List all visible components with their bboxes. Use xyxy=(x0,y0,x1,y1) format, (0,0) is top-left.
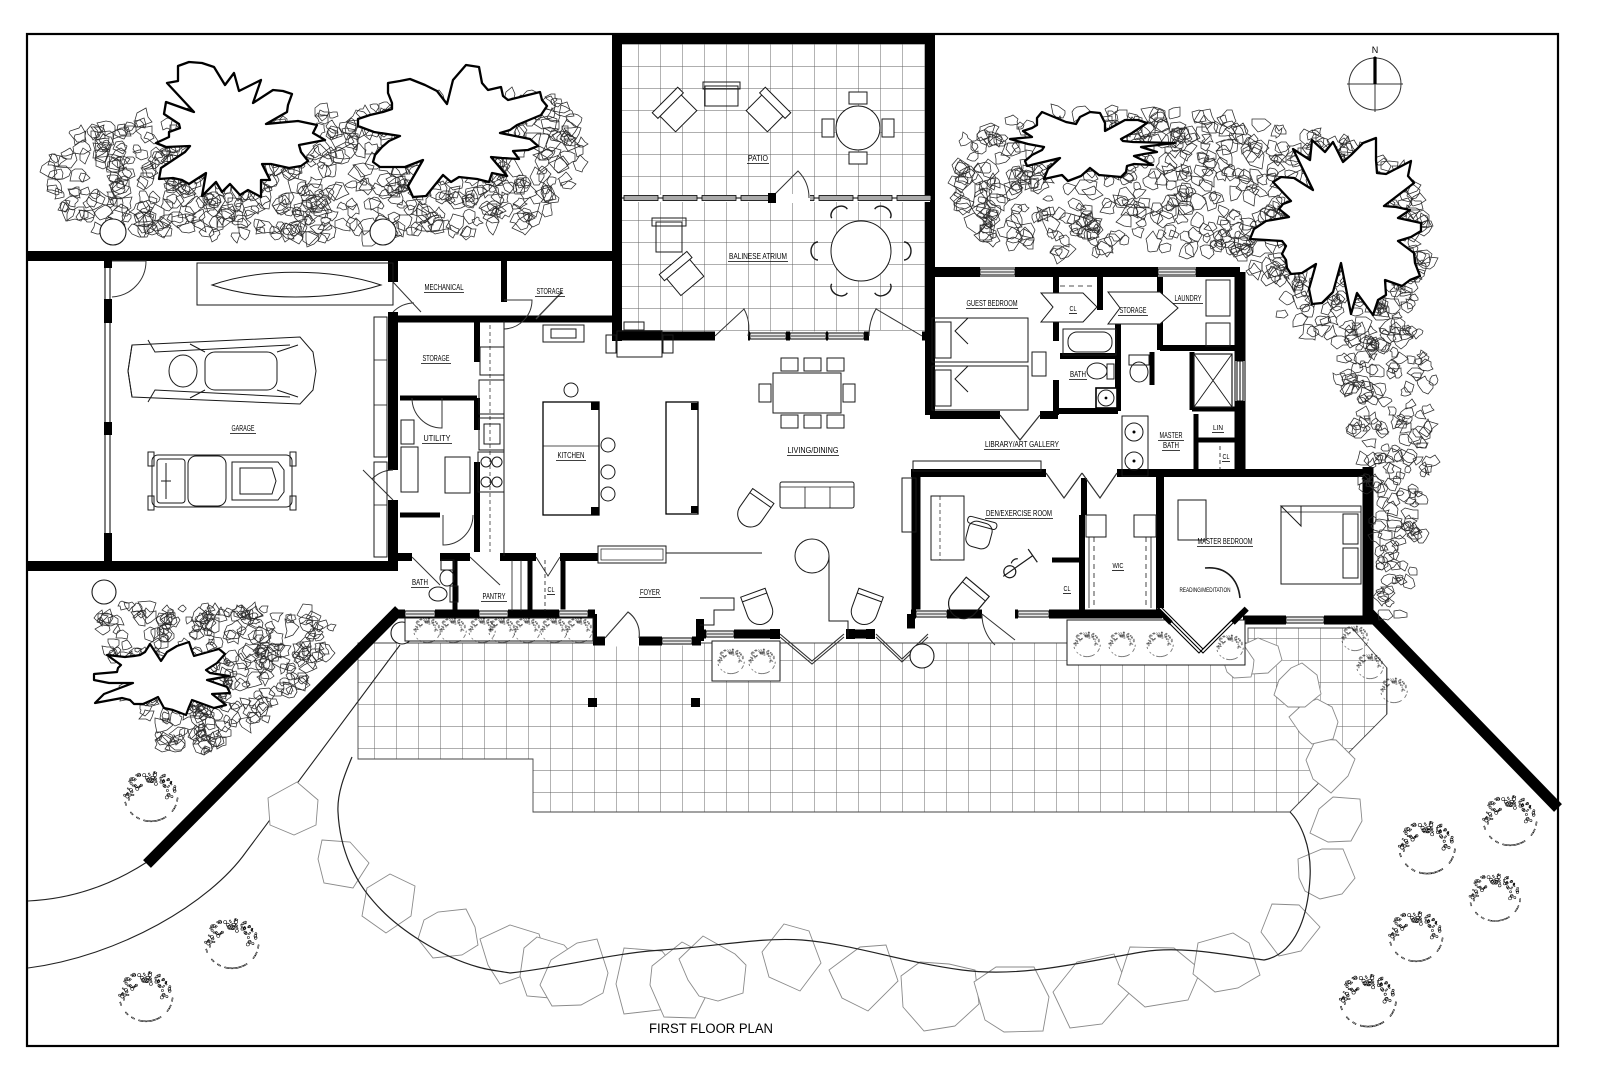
svg-text:PANTRY: PANTRY xyxy=(483,592,506,601)
svg-text:MASTER BEDROOM: MASTER BEDROOM xyxy=(1198,537,1253,546)
svg-text:LIBRARY/ART GALLERY: LIBRARY/ART GALLERY xyxy=(985,440,1059,449)
svg-text:GARAGE: GARAGE xyxy=(232,424,255,433)
svg-text:FIRST FLOOR PLAN: FIRST FLOOR PLAN xyxy=(649,1021,773,1036)
svg-text:MASTER: MASTER xyxy=(1160,431,1183,440)
svg-text:GUEST BEDROOM: GUEST BEDROOM xyxy=(967,299,1018,308)
svg-text:CL: CL xyxy=(1070,306,1077,313)
svg-text:LIVING/DINING: LIVING/DINING xyxy=(788,446,839,455)
svg-text:CL: CL xyxy=(1064,586,1071,593)
svg-text:WIC: WIC xyxy=(1113,561,1124,570)
svg-text:STORAGE: STORAGE xyxy=(423,354,450,363)
svg-text:STORAGE: STORAGE xyxy=(537,287,564,296)
svg-text:MECHANICAL: MECHANICAL xyxy=(425,283,464,292)
svg-text:BATH: BATH xyxy=(1163,441,1179,450)
svg-text:READING/MEDITATION: READING/MEDITATION xyxy=(1180,588,1231,594)
svg-text:N: N xyxy=(1372,45,1379,55)
svg-text:BATH: BATH xyxy=(1070,370,1086,379)
svg-text:LAUNDRY: LAUNDRY xyxy=(1175,294,1202,303)
svg-text:FOYER: FOYER xyxy=(640,588,660,597)
svg-text:BATH: BATH xyxy=(412,578,428,587)
svg-text:CL: CL xyxy=(548,587,555,594)
svg-text:CL: CL xyxy=(1223,454,1230,461)
svg-text:UTILITY: UTILITY xyxy=(424,434,451,443)
svg-text:DEN/EXERCISE ROOM: DEN/EXERCISE ROOM xyxy=(986,509,1052,518)
svg-text:STORAGE: STORAGE xyxy=(1120,306,1147,315)
svg-text:LIN: LIN xyxy=(1213,425,1223,432)
svg-text:PATIO: PATIO xyxy=(748,154,768,163)
svg-text:BALINESE ATRIUM: BALINESE ATRIUM xyxy=(729,252,787,261)
svg-text:KITCHEN: KITCHEN xyxy=(558,451,585,460)
